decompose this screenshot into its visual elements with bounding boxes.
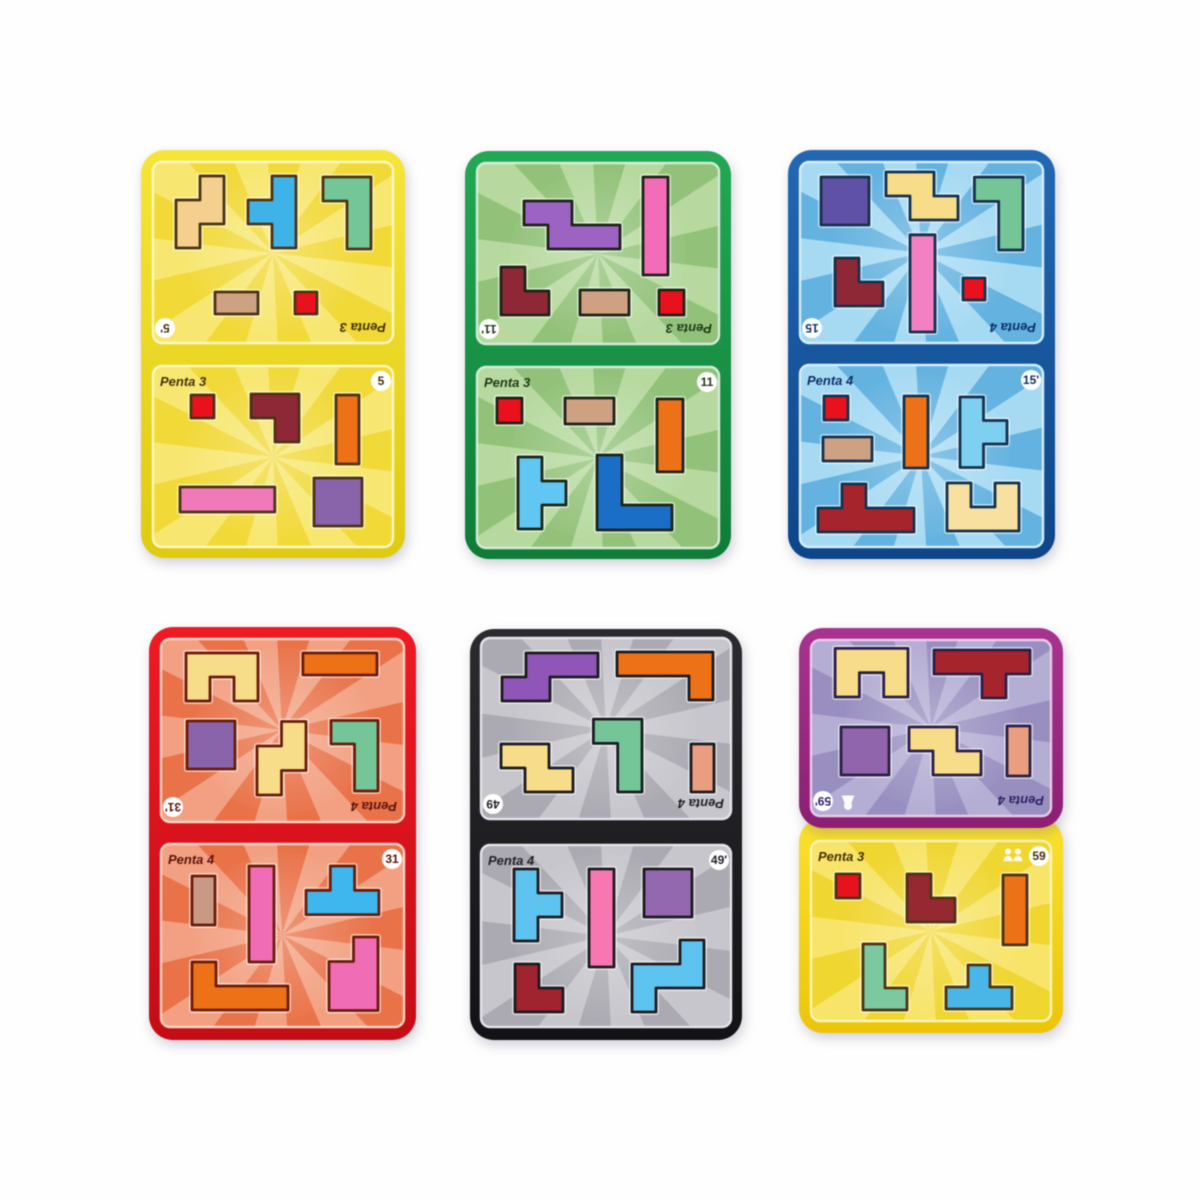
svg-text:11': 11' xyxy=(481,322,497,336)
svg-text:11: 11 xyxy=(701,375,714,389)
svg-text:Penta 3: Penta 3 xyxy=(484,375,531,390)
svg-text:59': 59' xyxy=(815,794,831,808)
svg-text:Penta 4: Penta 4 xyxy=(989,320,1036,335)
svg-text:Penta 3: Penta 3 xyxy=(160,374,207,389)
svg-text:59: 59 xyxy=(1032,849,1046,863)
svg-text:Penta 4: Penta 4 xyxy=(168,852,215,867)
svg-text:Penta 3: Penta 3 xyxy=(339,320,386,335)
svg-text:49: 49 xyxy=(486,797,500,811)
svg-text:Penta 4: Penta 4 xyxy=(488,853,535,868)
svg-text:5': 5' xyxy=(160,321,170,335)
svg-text:Penta 4: Penta 4 xyxy=(677,796,724,811)
svg-text:15: 15 xyxy=(805,321,819,335)
svg-text:Penta 3: Penta 3 xyxy=(665,321,712,336)
svg-text:Penta 4: Penta 4 xyxy=(350,799,397,814)
svg-text:5: 5 xyxy=(378,374,385,388)
svg-text:Penta 4: Penta 4 xyxy=(807,373,854,388)
svg-text:15': 15' xyxy=(1023,373,1039,387)
svg-text:Penta 3: Penta 3 xyxy=(818,849,865,864)
svg-text:49': 49' xyxy=(711,853,727,867)
svg-text:31: 31 xyxy=(385,852,399,866)
svg-text:Penta 4: Penta 4 xyxy=(997,793,1044,808)
svg-text:31': 31' xyxy=(165,800,181,814)
